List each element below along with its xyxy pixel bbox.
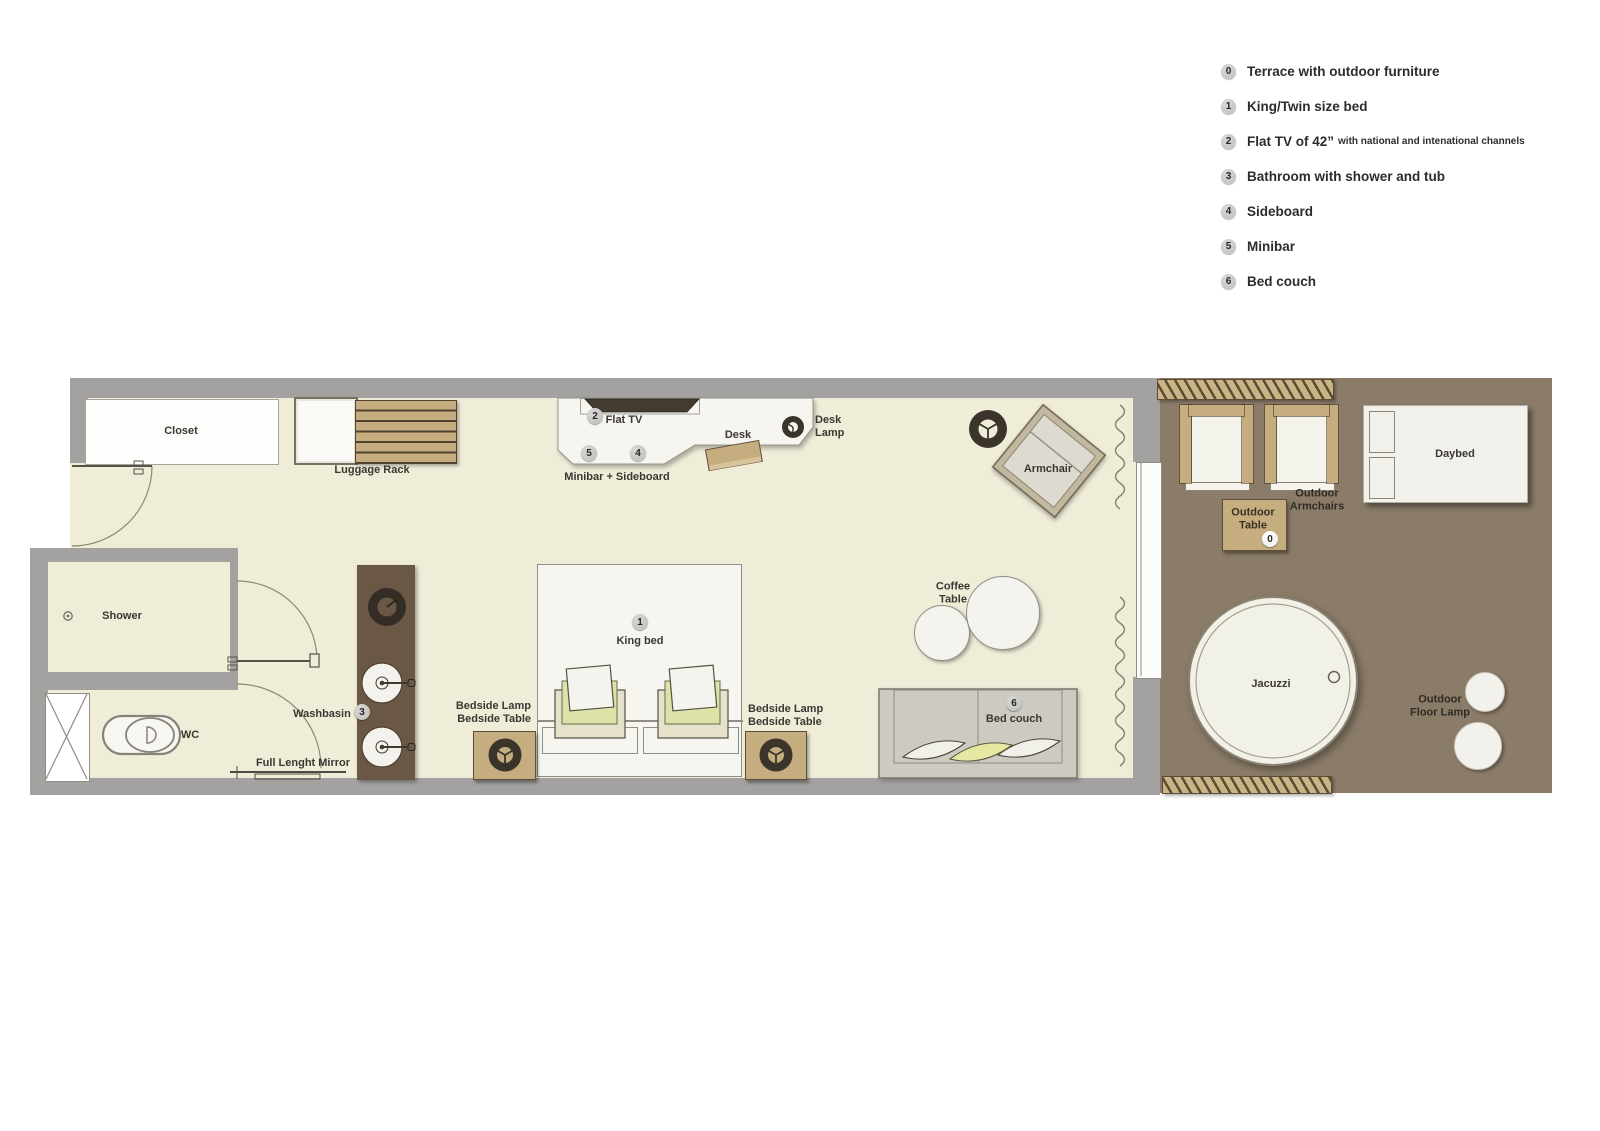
legend-item-6: 6 Bed couch [1221, 271, 1316, 291]
outdoor-floor-lamp-label-line1: Outdoor [1410, 694, 1470, 707]
king-bed-label: King bed [616, 635, 663, 648]
terrace-window [1136, 462, 1162, 679]
washbasin-counter [357, 565, 415, 780]
outdoor-armchair-seat [1191, 414, 1244, 483]
minibar-sideboard-label: Minibar + Sideboard [564, 471, 669, 484]
entry-door-opening [70, 463, 88, 548]
daybed-label: Daybed [1435, 448, 1475, 461]
mirror-label: Full Lenght Mirror [256, 757, 350, 770]
badge-bathroom: 3 [354, 704, 370, 720]
shower-label: Shower [102, 610, 142, 623]
outdoor-armchair-2 [1265, 405, 1338, 490]
outdoor-floor-lamp-label: Outdoor Floor Lamp [1410, 694, 1470, 719]
bedside-table-left [473, 731, 536, 780]
daybed-pillow [1369, 457, 1395, 499]
badge-terrace: 0 [1262, 531, 1278, 547]
outdoor-armchairs-label-line2: Armchairs [1290, 500, 1344, 513]
jacuzzi-label: Jacuzzi [1251, 678, 1290, 691]
legend-label: Minibar [1247, 239, 1295, 254]
legend-badge: 2 [1221, 134, 1236, 149]
legend-badge: 4 [1221, 204, 1236, 219]
badge-minibar: 5 [581, 445, 597, 461]
outdoor-armchair-1 [1180, 405, 1253, 490]
armchair-label: Armchair [1024, 463, 1072, 476]
legend-badge: 5 [1221, 239, 1236, 254]
outdoor-floor-lamp-small [1465, 672, 1505, 712]
legend-item-1: 1 King/Twin size bed [1221, 96, 1368, 116]
badge-sideboard: 4 [630, 445, 646, 461]
legend-label: King/Twin size bed [1247, 99, 1368, 114]
coffee-table-label-line2: Table [936, 593, 970, 606]
daybed-pillow [1369, 411, 1395, 453]
outdoor-armchairs-label: Outdoor Armchairs [1290, 488, 1344, 513]
wall-shower-right [230, 562, 238, 672]
luggage-rack-label: Luggage Rack [334, 464, 409, 477]
closet-label: Closet [164, 425, 198, 438]
desk-lamp-label-line2: Lamp [815, 427, 844, 440]
outdoor-floor-lamp-label-line2: Floor Lamp [1410, 706, 1470, 719]
legend-badge: 0 [1221, 64, 1236, 79]
wall-right-upper [1133, 398, 1160, 462]
washbasin-label: Washbasin [293, 708, 351, 721]
bed-couch-label: Bed couch [986, 713, 1042, 726]
deck-hatch-bottom [1162, 776, 1332, 794]
deck-hatch-top [1157, 379, 1334, 400]
legend-label: Flat TV of 42” [1247, 134, 1334, 149]
bedside-label-left: Bedside Lamp Bedside Table [456, 700, 531, 726]
outdoor-floor-lamp-large [1454, 722, 1502, 770]
wc-label: WC [181, 729, 199, 742]
legend-label: Bathroom with shower and tub [1247, 169, 1445, 184]
bed-blanket-line [537, 720, 743, 722]
bedside-lamp-label: Bedside Lamp [748, 703, 823, 716]
flat-tv-label: Flat TV [606, 414, 643, 427]
wall-right-lower [1133, 677, 1160, 778]
legend-badge: 3 [1221, 169, 1236, 184]
bedside-table-label: Bedside Table [456, 713, 531, 726]
legend-item-3: 3 Bathroom with shower and tub [1221, 166, 1445, 186]
outdoor-table-label-line2: Table [1231, 519, 1274, 532]
luggage-rack-slats [355, 400, 457, 464]
outdoor-armchair-seat [1276, 414, 1329, 483]
bedside-lamp-label: Bedside Lamp [456, 700, 531, 713]
outdoor-armchair-frame [1327, 405, 1338, 483]
legend-label: Sideboard [1247, 204, 1313, 219]
luggage-rack-shelf [294, 397, 358, 465]
service-shaft [45, 693, 90, 782]
bedside-table-right [745, 731, 807, 780]
coffee-table-label: Coffee Table [936, 581, 970, 606]
bedside-table-label: Bedside Table [748, 716, 823, 729]
legend-badge: 1 [1221, 99, 1236, 114]
desk-lamp-label-line1: Desk [815, 414, 844, 427]
legend-sublabel: with national and intenational channels [1338, 136, 1525, 147]
outdoor-table-label: Outdoor Table [1231, 507, 1274, 532]
coffee-table-large [966, 576, 1040, 650]
legend-item-0: 0 Terrace with outdoor furniture [1221, 61, 1440, 81]
floor-plan-page: Closet Luggage Rack 2 Flat TV Desk Desk … [0, 0, 1600, 1131]
desk-lamp-label: Desk Lamp [815, 414, 844, 440]
outdoor-armchair-frame [1265, 405, 1276, 483]
outdoor-armchairs-label-line1: Outdoor [1290, 488, 1344, 501]
wall-shower-top [48, 548, 238, 562]
legend-badge: 6 [1221, 274, 1236, 289]
legend-item-2: 2 Flat TV of 42” with national and inten… [1221, 131, 1525, 151]
wall-bottom [30, 778, 1160, 795]
legend-label: Bed couch [1247, 274, 1316, 289]
outdoor-armchair-frame [1274, 405, 1329, 416]
coffee-table-small [914, 605, 970, 661]
desk-label: Desk [725, 429, 751, 442]
outdoor-armchair-frame [1189, 405, 1244, 416]
outdoor-armchair-frame [1242, 405, 1253, 483]
badge-flat-tv: 2 [587, 408, 603, 424]
bed-foot-left [542, 727, 638, 754]
bedside-label-right: Bedside Lamp Bedside Table [748, 703, 823, 729]
legend-label: Terrace with outdoor furniture [1247, 64, 1440, 79]
wall-top [70, 378, 1160, 398]
badge-bed-couch: 6 [1006, 695, 1022, 711]
legend-item-5: 5 Minibar [1221, 236, 1295, 256]
outdoor-table-label-line1: Outdoor [1231, 507, 1274, 520]
badge-king-bed: 1 [632, 614, 648, 630]
legend-item-4: 4 Sideboard [1221, 201, 1313, 221]
outdoor-armchair-frame [1180, 405, 1191, 483]
coffee-table-label-line1: Coffee [936, 581, 970, 594]
bed-foot-right [643, 727, 739, 754]
wall-shower-wc-divider [48, 672, 238, 690]
